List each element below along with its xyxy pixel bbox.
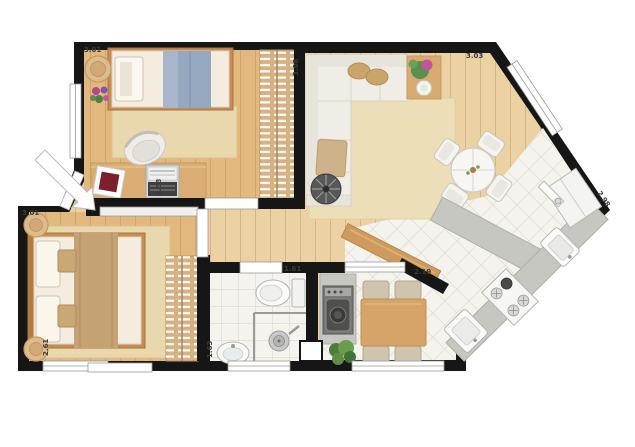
pillow-1 — [36, 241, 60, 287]
nightstand — [85, 56, 111, 82]
floor-fan — [311, 174, 341, 204]
tan-runner — [74, 233, 118, 348]
bed-cushion-1 — [58, 250, 76, 272]
toilet — [256, 279, 305, 307]
wood-chair-1 — [363, 281, 389, 299]
wardrobe — [260, 50, 294, 200]
bed-cushion-2 — [58, 305, 76, 327]
wood-dining-table — [361, 299, 426, 346]
pillow-fold — [120, 62, 132, 96]
duct-shaft — [300, 341, 322, 361]
double-bed — [28, 233, 145, 348]
bedroom1-door — [205, 198, 258, 209]
label-bedroom1-width: 3.01 — [84, 46, 101, 54]
pillow-2 — [36, 296, 60, 342]
label-bathroom-width: 1.61 — [284, 265, 301, 273]
pouf-2 — [366, 69, 388, 85]
wall-bathroom-north-left — [206, 262, 240, 273]
blanket-fold — [163, 51, 178, 108]
floor-plan-canvas: 3.01 2.58 3.08 3.03 2.98 3.01 2.61 1.61 … — [0, 0, 635, 447]
label-bathroom-depth: 1.63 — [206, 341, 214, 358]
label-bedroom1-depth: 2.58 — [155, 179, 163, 196]
bathroom-door — [240, 262, 282, 273]
wood-chair-2 — [395, 281, 421, 299]
sofa-cushion — [316, 139, 347, 177]
floor-plan: 3.01 2.58 3.08 3.03 2.98 3.01 2.61 1.61 … — [0, 0, 635, 447]
wardrobe-2 — [166, 256, 198, 361]
single-bed — [108, 48, 233, 110]
red-cushion — [93, 166, 125, 198]
console-table — [407, 56, 441, 99]
washing-machine — [323, 286, 353, 334]
label-master-width: 3.01 — [22, 209, 39, 217]
wall-bedroom1-south-right — [258, 198, 305, 209]
label-dining-width: 2.19 — [414, 268, 431, 276]
wall-service-north — [318, 262, 345, 273]
label-master-depth: 2.61 — [42, 339, 50, 356]
master-window-2 — [88, 363, 152, 372]
master-door — [197, 209, 208, 257]
label-living-width: 3.03 — [466, 52, 483, 60]
label-living-depth: 3.08 — [292, 59, 300, 76]
wall-master-north — [100, 207, 198, 216]
